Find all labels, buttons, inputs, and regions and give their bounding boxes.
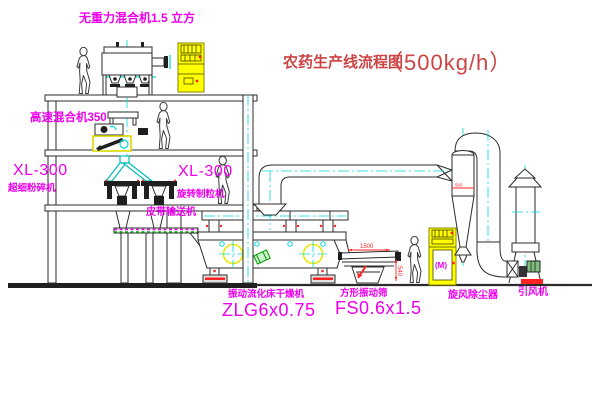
granulator-left bbox=[104, 180, 140, 206]
vibrating-screen bbox=[338, 249, 401, 283]
dim-screen-length: 1500 bbox=[360, 244, 374, 250]
indicator-dot bbox=[199, 56, 202, 59]
dryer-feet bbox=[203, 268, 335, 283]
fan-motor bbox=[527, 261, 540, 272]
control-cabinet-ground: (M) bbox=[429, 228, 456, 285]
diagram-capacity: （500kg/h） bbox=[381, 50, 512, 75]
person-figure-4 bbox=[408, 236, 421, 282]
cyclone-dim-text: 500 bbox=[455, 183, 463, 188]
indicator-dot bbox=[196, 80, 199, 83]
belt-conveyor bbox=[114, 211, 211, 283]
exhaust-duct bbox=[259, 165, 452, 211]
person-figure-1 bbox=[77, 47, 90, 93]
mixer-outlet-flange bbox=[164, 56, 168, 68]
floor-slab-2 bbox=[45, 150, 257, 156]
fan-base bbox=[521, 279, 543, 284]
column-mid bbox=[167, 211, 181, 283]
person-figure-2 bbox=[157, 102, 170, 148]
label-gravity-mixer: 无重力混合机1.5 立方 bbox=[78, 10, 195, 25]
label-mill-model: XL-300 bbox=[13, 162, 68, 179]
label-belt-conveyor: 皮带输送机 bbox=[145, 205, 196, 218]
granulator-right bbox=[141, 180, 177, 206]
label-dryer-model: ZLG6x0.75 bbox=[222, 300, 316, 320]
floor-slab-1 bbox=[45, 95, 257, 101]
y-chute bbox=[106, 156, 152, 181]
cad-flow-diagram: (M) 500 bbox=[0, 0, 600, 403]
mixer-discharge-valves bbox=[109, 75, 151, 87]
dim-screen-height: 540 bbox=[396, 266, 402, 277]
label-screen-model: FS0.6x1.5 bbox=[335, 298, 422, 318]
ground-line bbox=[8, 283, 592, 288]
label-cyclone-name: 旋风除尘器 bbox=[447, 288, 499, 301]
label-granulator-model: XL-300 bbox=[178, 163, 233, 180]
mixer-pedestal bbox=[117, 87, 137, 97]
indicator-dot bbox=[452, 262, 455, 265]
label-dryer-name: 振动流化床干燥机 bbox=[228, 288, 305, 300]
label-high-speed-mixer: 高速混合机350 bbox=[30, 110, 107, 124]
vibration-mounts bbox=[206, 220, 336, 232]
label-granulator-name: 旋转制粒机 bbox=[176, 188, 225, 200]
control-cabinet-top bbox=[178, 43, 204, 92]
motor-symbol: (M) bbox=[435, 261, 447, 270]
indicator-dot bbox=[451, 232, 454, 235]
label-mill-name: 超细粉碎机 bbox=[7, 182, 56, 194]
diagram-canvas: (M) 500 bbox=[0, 0, 600, 403]
label-fan-name: 引风机 bbox=[518, 285, 548, 298]
